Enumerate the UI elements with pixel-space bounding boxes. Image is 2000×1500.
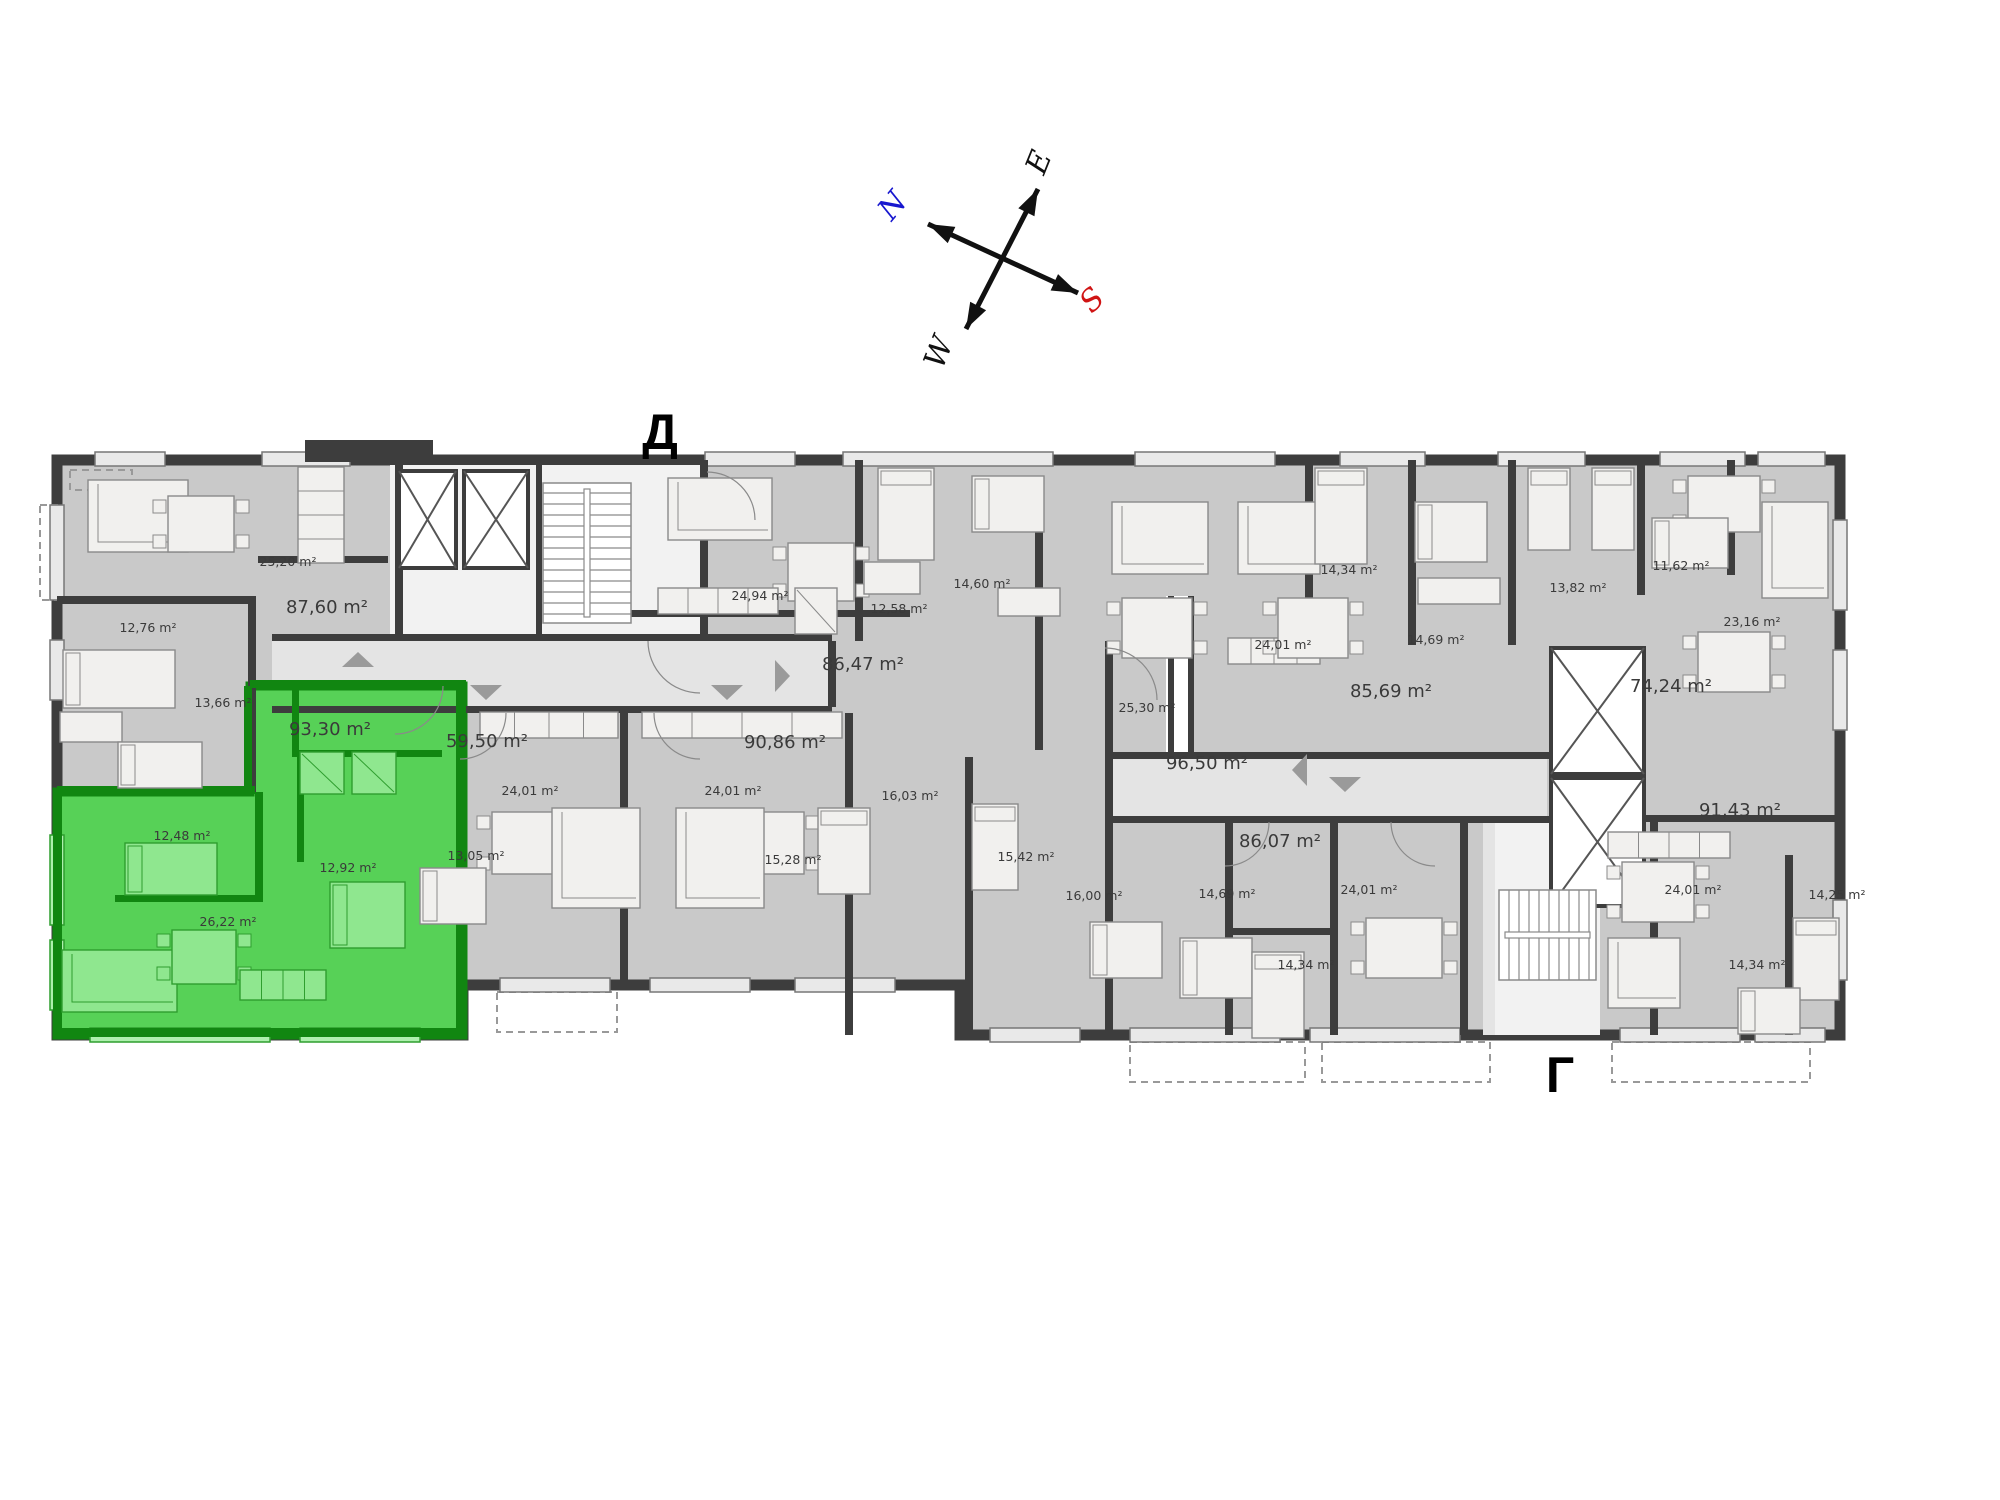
chair bbox=[157, 967, 170, 980]
chair bbox=[806, 816, 819, 829]
chair bbox=[1607, 905, 1620, 918]
area-label: 14,34 m² bbox=[1729, 957, 1786, 972]
bed-pillow bbox=[1796, 921, 1836, 935]
wall bbox=[255, 792, 263, 902]
chair bbox=[153, 500, 166, 513]
area-label: 12,58 m² bbox=[871, 601, 928, 616]
area-label: 85,69 m² bbox=[1350, 681, 1432, 702]
area-label: 16,00 m² bbox=[1066, 888, 1123, 903]
wall bbox=[305, 440, 433, 462]
furniture-sofa bbox=[668, 478, 772, 540]
area-label: 24,94 m² bbox=[732, 588, 789, 603]
furniture-desk bbox=[60, 712, 122, 742]
area-label: 15,42 m² bbox=[998, 849, 1055, 864]
chair bbox=[477, 816, 490, 829]
chair bbox=[1696, 905, 1709, 918]
area-label: 13,66 m² bbox=[195, 695, 252, 710]
furniture-sofa bbox=[676, 808, 764, 908]
wall bbox=[272, 634, 832, 641]
wall bbox=[1508, 460, 1516, 645]
chair bbox=[157, 934, 170, 947]
window bbox=[1135, 452, 1275, 466]
balcony bbox=[1612, 1042, 1810, 1082]
area-label: 26,22 m² bbox=[200, 914, 257, 929]
chair bbox=[1194, 641, 1207, 654]
area-label: 23,16 m² bbox=[1724, 614, 1781, 629]
generated-plan: 25,20 m²87,60 m²12,76 m²13,66 m²93,30 m²… bbox=[40, 146, 1865, 1082]
window bbox=[1833, 650, 1847, 730]
furniture-desk bbox=[864, 562, 920, 594]
balcony bbox=[497, 992, 617, 1032]
bed-pillow bbox=[121, 745, 135, 785]
bed-pillow bbox=[333, 885, 347, 945]
area-label: 14,69 m² bbox=[1408, 632, 1465, 647]
stair-stringer bbox=[584, 489, 590, 617]
area-label: 24,01 m² bbox=[502, 783, 559, 798]
window bbox=[50, 640, 64, 700]
furniture-table bbox=[1122, 598, 1192, 658]
area-label: 12,76 m² bbox=[120, 620, 177, 635]
window bbox=[1833, 520, 1847, 610]
area-label: 14,60 m² bbox=[954, 576, 1011, 591]
wall bbox=[1035, 520, 1043, 750]
wall bbox=[1105, 816, 1550, 823]
bed-pillow bbox=[881, 471, 931, 485]
wall bbox=[1460, 822, 1468, 1035]
area-label: 74,24 m² bbox=[1630, 676, 1712, 697]
area-label: 96,50 m² bbox=[1166, 753, 1248, 774]
area-label: 12,48 m² bbox=[154, 828, 211, 843]
bed-pillow bbox=[1418, 505, 1432, 559]
floor-plan-page: 25,20 m²87,60 m²12,76 m²13,66 m²93,30 m²… bbox=[0, 0, 2000, 1500]
area-label: 14,69 m² bbox=[1199, 886, 1256, 901]
bed-pillow bbox=[975, 807, 1015, 821]
wall bbox=[965, 757, 973, 1035]
section-label-d: Д bbox=[642, 404, 678, 460]
area-label: 13,82 m² bbox=[1550, 580, 1607, 595]
compass-arrowhead-E bbox=[1018, 189, 1038, 216]
bed-pillow bbox=[1318, 471, 1364, 485]
window bbox=[843, 452, 1053, 466]
stair-stringer bbox=[1505, 932, 1590, 938]
chair bbox=[856, 547, 869, 560]
chair bbox=[1350, 602, 1363, 615]
furniture-sofa bbox=[1238, 502, 1320, 574]
window bbox=[705, 452, 795, 466]
chair bbox=[1696, 866, 1709, 879]
chair bbox=[773, 547, 786, 560]
compass-arrowhead-S bbox=[1051, 274, 1078, 293]
area-label: 86,47 m² bbox=[822, 654, 904, 675]
chair bbox=[1444, 922, 1457, 935]
area-label: 87,60 m² bbox=[286, 597, 368, 618]
window bbox=[650, 978, 750, 992]
area-label: 11,62 m² bbox=[1653, 558, 1710, 573]
compass-arrowhead-N bbox=[928, 224, 955, 243]
area-label: 93,30 m² bbox=[289, 719, 371, 740]
compass-letter-N: N bbox=[870, 183, 915, 228]
furniture-wardrobe bbox=[1418, 578, 1500, 604]
balcony bbox=[1322, 1042, 1490, 1082]
bed-pillow bbox=[1183, 941, 1197, 995]
furniture-sofa bbox=[62, 950, 177, 1012]
area-label: 13,05 m² bbox=[448, 848, 505, 863]
window bbox=[990, 1028, 1080, 1042]
chair bbox=[1351, 961, 1364, 974]
compass-arrowhead-W bbox=[966, 302, 986, 329]
area-label: 12,92 m² bbox=[320, 860, 377, 875]
chair bbox=[1107, 641, 1120, 654]
area-label: 14,25 m² bbox=[1809, 887, 1866, 902]
chair bbox=[236, 500, 249, 513]
chair bbox=[1263, 602, 1276, 615]
furniture-table bbox=[172, 930, 236, 984]
area-label: 14,34 m² bbox=[1278, 957, 1335, 972]
compass-letter-S: S bbox=[1073, 281, 1112, 320]
window bbox=[500, 978, 610, 992]
chair bbox=[1607, 866, 1620, 879]
wall bbox=[53, 1028, 467, 1037]
area-label: 24,01 m² bbox=[1255, 637, 1312, 652]
chair bbox=[1444, 961, 1457, 974]
wall bbox=[115, 895, 263, 902]
area-label: 59,50 m² bbox=[446, 731, 528, 752]
chair bbox=[1350, 641, 1363, 654]
area-label: 91,43 m² bbox=[1699, 800, 1781, 821]
chair bbox=[1772, 675, 1785, 688]
bed-pillow bbox=[975, 479, 989, 529]
chair bbox=[236, 535, 249, 548]
floor-plan-svg: 25,20 m²87,60 m²12,76 m²13,66 m²93,30 m²… bbox=[0, 0, 2000, 1500]
furniture-sofa bbox=[552, 808, 640, 908]
furniture-wardrobe bbox=[998, 588, 1060, 616]
window bbox=[50, 505, 64, 600]
bed-pillow bbox=[423, 871, 437, 921]
wall bbox=[1637, 460, 1645, 595]
bed-pillow bbox=[1595, 471, 1631, 485]
bed-pillow bbox=[1093, 925, 1107, 975]
wall bbox=[250, 680, 466, 688]
compass-letter-W: W bbox=[917, 330, 962, 374]
chair bbox=[1673, 480, 1686, 493]
wall bbox=[57, 596, 252, 604]
area-label: 86,07 m² bbox=[1239, 831, 1321, 852]
area-label: 90,86 m² bbox=[744, 732, 826, 753]
area-label: 25,30 m² bbox=[1119, 700, 1176, 715]
window bbox=[1620, 1028, 1740, 1042]
chair bbox=[1194, 602, 1207, 615]
bed-pillow bbox=[128, 846, 142, 892]
window bbox=[95, 452, 165, 466]
chair bbox=[1351, 922, 1364, 935]
chair bbox=[1772, 636, 1785, 649]
bed-pillow bbox=[66, 653, 80, 705]
area-label: 24,01 m² bbox=[1665, 882, 1722, 897]
chair bbox=[1107, 602, 1120, 615]
area-label: 16,03 m² bbox=[882, 788, 939, 803]
compass-letter-E: E bbox=[1018, 146, 1059, 180]
bed-pillow bbox=[1531, 471, 1567, 485]
window bbox=[1758, 452, 1825, 466]
bed-pillow bbox=[821, 811, 867, 825]
chair bbox=[1683, 636, 1696, 649]
area-label: 14,34 m² bbox=[1321, 562, 1378, 577]
wall bbox=[53, 792, 62, 1035]
wall bbox=[1230, 928, 1335, 935]
bed-pillow bbox=[1741, 991, 1755, 1031]
area-label: 24,01 m² bbox=[1341, 882, 1398, 897]
section-label-g: Г bbox=[1546, 1047, 1574, 1103]
area-label: 25,20 m² bbox=[260, 554, 317, 569]
furniture-table bbox=[168, 496, 234, 552]
furniture-table bbox=[1366, 918, 1442, 978]
chair bbox=[1762, 480, 1775, 493]
furniture-sofa bbox=[1112, 502, 1208, 574]
wall bbox=[536, 460, 542, 641]
chair bbox=[153, 535, 166, 548]
balcony bbox=[1130, 1042, 1305, 1082]
area-label: 15,28 m² bbox=[765, 852, 822, 867]
area-label: 24,01 m² bbox=[705, 783, 762, 798]
chair bbox=[238, 934, 251, 947]
